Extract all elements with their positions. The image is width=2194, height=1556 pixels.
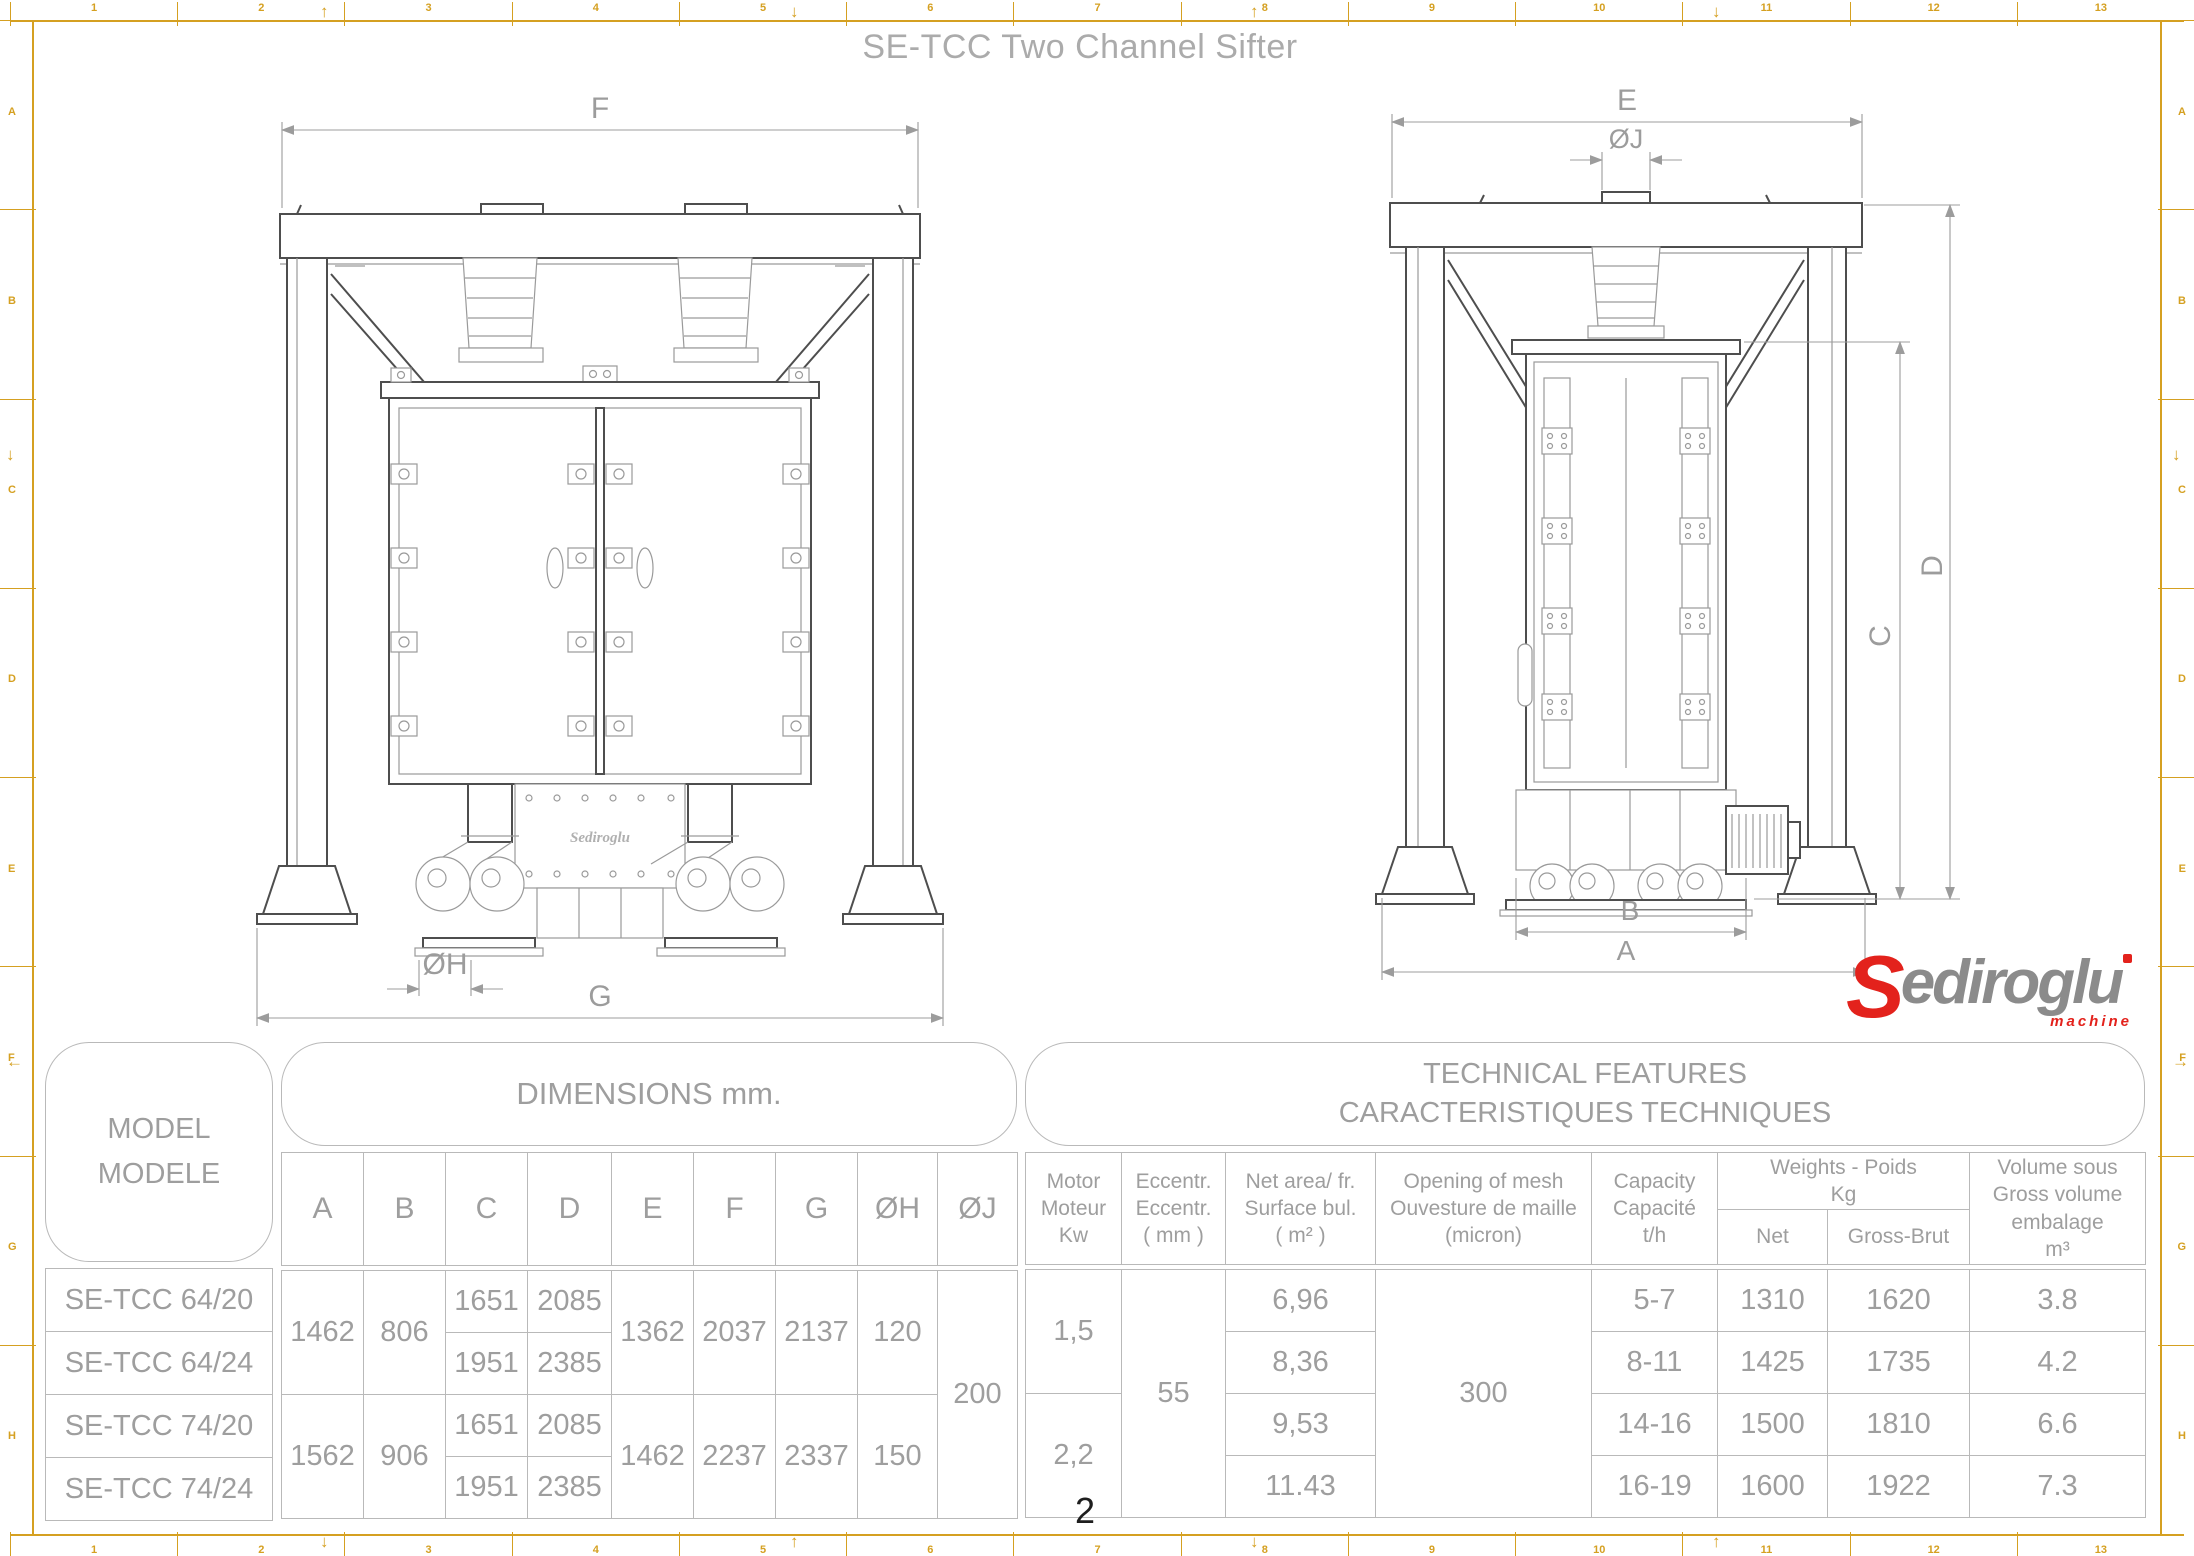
frame-ruler-cell: D — [0, 588, 36, 777]
frame-arrow-mark: ↓ — [790, 2, 799, 22]
frame-ruler-cell: H — [0, 1345, 36, 1534]
sediroglu-logo: S ediroglu machine — [1846, 950, 2136, 1030]
technical-header-line2: CARACTERISTIQUES TECHNIQUES — [1339, 1094, 1832, 1133]
frame-ruler-cell: B — [0, 209, 36, 398]
tech-value-gross-weight: 1922 — [1828, 1456, 1970, 1518]
svg-text:D: D — [1916, 555, 1949, 577]
tech-col-motor: MotorMoteurKw — [1026, 1153, 1122, 1265]
front-view-drawing: F — [185, 96, 1015, 1040]
frame-ruler-cell: 6 — [846, 2, 1013, 26]
frame-ruler-cell: E — [0, 777, 36, 966]
front-collector-box: Sediroglu — [515, 784, 685, 938]
front-dim-g: G — [257, 928, 943, 1026]
logo-s-glyph: S — [1846, 950, 1901, 1025]
dim-value-OJ: 200 — [938, 1271, 1018, 1519]
frame-ruler-top: 12345678910111213 — [10, 2, 2184, 26]
tech-value-gross-weight: 1810 — [1828, 1394, 1970, 1456]
dim-col-C: C — [446, 1153, 528, 1266]
tech-value-volume: 3.8 — [1970, 1270, 2146, 1332]
dim-value-G: 2337 — [776, 1395, 858, 1519]
frame-ruler-cell: 10 — [1515, 2, 1682, 26]
frame-ruler-cell: A — [0, 20, 36, 209]
frame-ruler-bottom: 12345678910111213 — [10, 1532, 2184, 1556]
tech-value-volume: 4.2 — [1970, 1332, 2146, 1394]
frame-ruler-cell: 8 — [1181, 1532, 1348, 1556]
frame-arrow-mark: ↓ — [1250, 1532, 1259, 1552]
front-dim-f: F — [282, 92, 918, 208]
frame-ruler-left: ABCDEFGH — [0, 20, 36, 1534]
side-dim-oj: ØJ — [1570, 124, 1682, 190]
tech-value-capacity: 5-7 — [1592, 1270, 1718, 1332]
side-inlet-bellows — [1588, 247, 1664, 338]
frame-ruler-cell: G — [0, 1156, 36, 1345]
tech-value-gross-weight: 1620 — [1828, 1270, 1970, 1332]
model-rows-table: SE-TCC 64/20 SE-TCC 64/24 SE-TCC 74/20 S… — [45, 1268, 273, 1521]
dim-value-A: 1462 — [282, 1271, 364, 1395]
technical-header-line1: TECHNICAL FEATURES — [1423, 1055, 1747, 1094]
dim-value-G: 2137 — [776, 1271, 858, 1395]
frame-arrow-mark: ↓ — [320, 1532, 329, 1552]
frame-ruler-cell: H — [2158, 1345, 2194, 1534]
dim-value-E: 1362 — [612, 1271, 694, 1395]
frame-ruler-cell: E — [2158, 777, 2194, 966]
dim-value-B: 806 — [364, 1271, 446, 1395]
frame-arrow-mark: ↓ — [1712, 2, 1721, 22]
frame-ruler-cell: 11 — [1682, 1532, 1849, 1556]
dim-col-B: B — [364, 1153, 446, 1266]
tech-col-volume: Volume sousGross volumeembalagem³ — [1970, 1153, 2146, 1265]
dim-col-A: A — [282, 1153, 364, 1266]
dim-value-C: 1951 — [446, 1457, 528, 1519]
tech-value-net-area: 11.43 — [1226, 1456, 1376, 1518]
tech-value-net-weight: 1310 — [1718, 1270, 1828, 1332]
datasheet-page: 12345678910111213 12345678910111213 ABCD… — [0, 0, 2194, 1556]
dim-value-D: 2385 — [528, 1457, 612, 1519]
frame-arrow-mark: ↓ — [6, 445, 15, 465]
technical-section: TECHNICAL FEATURES CARACTERISTIQUES TECH… — [1025, 1042, 2145, 1521]
tech-value-motor: 1,5 — [1026, 1270, 1122, 1394]
svg-text:F: F — [591, 92, 609, 125]
dimension-values-table: 1462 806 1651 2085 1362 2037 2137 120 20… — [281, 1270, 1018, 1519]
frame-ruler-cell: 3 — [344, 1532, 511, 1556]
frame-ruler-cell: G — [2158, 1156, 2194, 1345]
page-title: SE-TCC Two Channel Sifter — [60, 28, 2100, 67]
tech-value-eccentric: 55 — [1122, 1270, 1226, 1518]
dim-value-OH: 150 — [858, 1395, 938, 1519]
tech-value-gross-weight: 1735 — [1828, 1332, 1970, 1394]
dim-value-C: 1651 — [446, 1395, 528, 1457]
frame-ruler-cell: 5 — [679, 1532, 846, 1556]
model-header-line1: MODEL — [107, 1107, 210, 1152]
tech-value-net-area: 6,96 — [1226, 1270, 1376, 1332]
front-sieve-body — [389, 398, 811, 784]
frame-ruler-cell: 12 — [1850, 2, 2017, 26]
dim-value-D: 2085 — [528, 1395, 612, 1457]
frame-ruler-cell: 4 — [512, 2, 679, 26]
tech-value-mesh: 300 — [1376, 1270, 1592, 1518]
logo-trademark-dot — [2123, 954, 2132, 963]
frame-ruler-cell: B — [2158, 209, 2194, 398]
tech-value-net-weight: 1425 — [1718, 1332, 1828, 1394]
front-inlet-bellows — [459, 258, 758, 362]
svg-text:ØH: ØH — [423, 948, 468, 981]
dim-value-B: 906 — [364, 1395, 446, 1519]
svg-text:E: E — [1617, 84, 1637, 117]
svg-text:B: B — [1621, 895, 1640, 926]
tech-value-capacity: 8-11 — [1592, 1332, 1718, 1394]
tech-value-net-weight: 1600 — [1718, 1456, 1828, 1518]
side-top-beam — [1390, 192, 1862, 253]
model-header: MODEL MODELE — [45, 1042, 273, 1262]
tech-col-mesh-opening: Opening of meshOuvesture de maille(micro… — [1376, 1153, 1592, 1265]
model-cell: SE-TCC 74/20 — [46, 1395, 273, 1458]
tech-col-net-weight: Net — [1718, 1210, 1828, 1265]
dim-value-C: 1651 — [446, 1271, 528, 1333]
frame-arrow-mark: ← — [6, 1052, 23, 1072]
dim-value-C: 1951 — [446, 1333, 528, 1395]
dim-col-OJ: ØJ — [938, 1153, 1018, 1266]
dim-value-OH: 120 — [858, 1271, 938, 1395]
frame-ruler-right: ABCDEFGH — [2158, 20, 2194, 1534]
frame-arrow-mark: ↓ — [2172, 445, 2181, 465]
frame-ruler-cell: 9 — [1348, 1532, 1515, 1556]
frame-ruler-cell: D — [2158, 588, 2194, 777]
dim-col-F: F — [694, 1153, 776, 1266]
tech-value-volume: 6.6 — [1970, 1394, 2146, 1456]
tech-value-capacity: 16-19 — [1592, 1456, 1718, 1518]
tech-col-net-area: Net area/ fr.Surface bul.( m² ) — [1226, 1153, 1376, 1265]
frame-ruler-cell: 6 — [846, 1532, 1013, 1556]
dim-value-D: 2385 — [528, 1333, 612, 1395]
front-suspension-rail — [381, 366, 819, 398]
frame-ruler-cell: 4 — [512, 1532, 679, 1556]
dimensions-section: DIMENSIONS mm. A B C D E F G ØH ØJ — [281, 1042, 1017, 1521]
model-cell: SE-TCC 64/20 — [46, 1269, 273, 1332]
frame-ruler-cell: 11 — [1682, 2, 1849, 26]
tech-value-capacity: 14-16 — [1592, 1394, 1718, 1456]
svg-text:C: C — [1864, 625, 1897, 647]
frame-arrow-mark: ↑ — [1250, 2, 1259, 22]
frame-arrow-mark: → — [2172, 1052, 2189, 1072]
model-cell: SE-TCC 64/24 — [46, 1332, 273, 1395]
svg-text:G: G — [588, 980, 611, 1013]
frame-ruler-cell: 12 — [1850, 1532, 2017, 1556]
dim-value-D: 2085 — [528, 1271, 612, 1333]
dim-value-A: 1562 — [282, 1395, 364, 1519]
tech-value-net-weight: 1500 — [1718, 1394, 1828, 1456]
svg-text:Sediroglu: Sediroglu — [570, 830, 630, 846]
tech-value-net-area: 9,53 — [1226, 1394, 1376, 1456]
model-header-line2: MODELE — [98, 1152, 220, 1197]
side-sieve-body — [1512, 340, 1740, 790]
frame-ruler-cell: 7 — [1013, 2, 1180, 26]
dim-col-OH: ØH — [858, 1153, 938, 1266]
frame-ruler-cell: 7 — [1013, 1532, 1180, 1556]
frame-arrow-mark: ↑ — [790, 1532, 799, 1552]
svg-text:ØJ: ØJ — [1609, 124, 1644, 154]
tech-col-eccentric: Eccentr.Eccentr.( mm ) — [1122, 1153, 1226, 1265]
frame-ruler-cell: C — [2158, 399, 2194, 588]
frame-ruler-cell: 5 — [679, 2, 846, 26]
technical-columns-table: MotorMoteurKw Eccentr.Eccentr.( mm ) Net… — [1025, 1152, 2146, 1265]
model-cell: SE-TCC 74/24 — [46, 1458, 273, 1521]
logo-wordmark: ediroglu — [1901, 950, 2122, 1015]
model-section: MODEL MODELE SE-TCC 64/20 SE-TCC 64/24 S… — [45, 1042, 273, 1521]
dim-col-E: E — [612, 1153, 694, 1266]
dim-col-D: D — [528, 1153, 612, 1266]
frame-arrow-mark: ↑ — [320, 2, 329, 22]
dimensions-header: DIMENSIONS mm. — [281, 1042, 1017, 1146]
side-view-drawing: E ØJ — [1330, 88, 2020, 1038]
dim-value-E: 1462 — [612, 1395, 694, 1519]
frame-ruler-cell: 8 — [1181, 2, 1348, 26]
dim-value-F: 2037 — [694, 1271, 776, 1395]
tech-value-volume: 7.3 — [1970, 1456, 2146, 1518]
frame-ruler-cell: 13 — [2017, 1532, 2184, 1556]
side-dim-d: D — [1864, 205, 1960, 899]
frame-ruler-cell: C — [0, 399, 36, 588]
frame-ruler-cell: 3 — [344, 2, 511, 26]
specification-table: MODEL MODELE SE-TCC 64/20 SE-TCC 64/24 S… — [45, 1042, 2145, 1521]
tech-col-weights: Weights - PoidsKg — [1718, 1153, 1970, 1210]
side-outlet-assembly — [1500, 790, 1800, 916]
technical-values-table: 1,5 55 6,96 300 5-7 1310 1620 3.8 8,36 8… — [1025, 1269, 2146, 1518]
dim-value-F: 2237 — [694, 1395, 776, 1519]
svg-text:A: A — [1617, 935, 1636, 966]
tech-col-capacity: CapacityCapacitét/h — [1592, 1153, 1718, 1265]
dimension-letters-table: A B C D E F G ØH ØJ — [281, 1152, 1018, 1266]
frame-ruler-cell: 10 — [1515, 1532, 1682, 1556]
technical-header: TECHNICAL FEATURES CARACTERISTIQUES TECH… — [1025, 1042, 2145, 1146]
frame-ruler-cell: 1 — [10, 1532, 177, 1556]
page-number: 2 — [1050, 1490, 1120, 1532]
frame-ruler-cell: A — [2158, 20, 2194, 209]
frame-arrow-mark: ↑ — [1712, 1532, 1721, 1552]
front-top-beam — [280, 204, 920, 264]
frame-ruler-cell: 9 — [1348, 2, 1515, 26]
tech-col-gross-weight: Gross-Brut — [1828, 1210, 1970, 1265]
dim-col-G: G — [776, 1153, 858, 1266]
tech-value-net-area: 8,36 — [1226, 1332, 1376, 1394]
